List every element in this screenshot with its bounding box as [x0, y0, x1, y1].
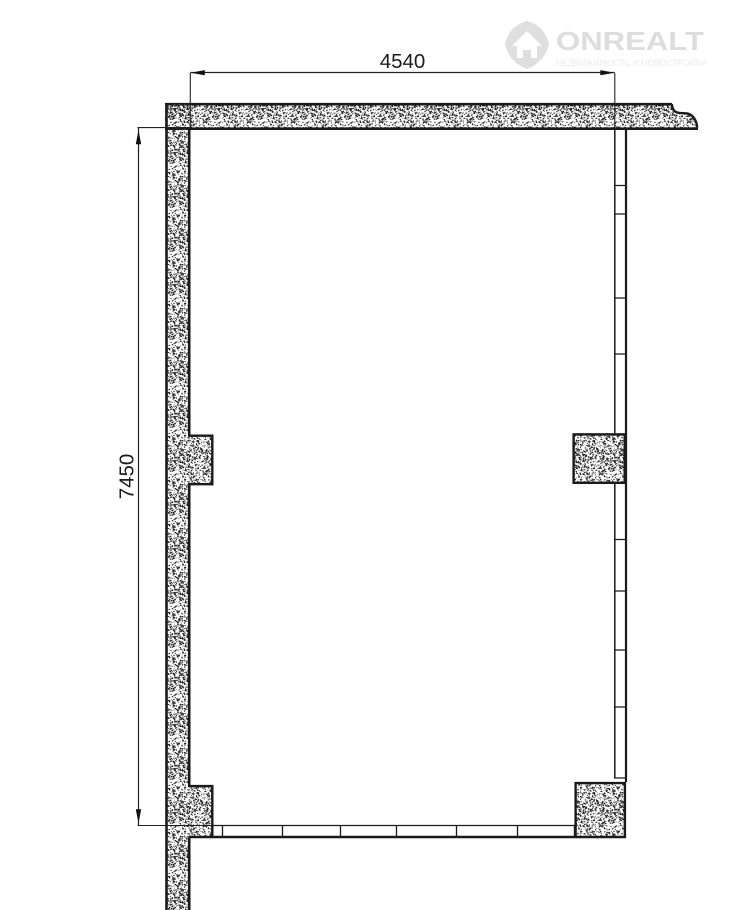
svg-text:НЕДВИЖИМОСТЬ И НОВОСТРОЙКИ: НЕДВИЖИМОСТЬ И НОВОСТРОЙКИ [556, 57, 707, 69]
svg-text:7450: 7450 [116, 454, 139, 500]
svg-text:ONREALT: ONREALT [556, 26, 704, 56]
svg-text:4540: 4540 [380, 50, 426, 73]
